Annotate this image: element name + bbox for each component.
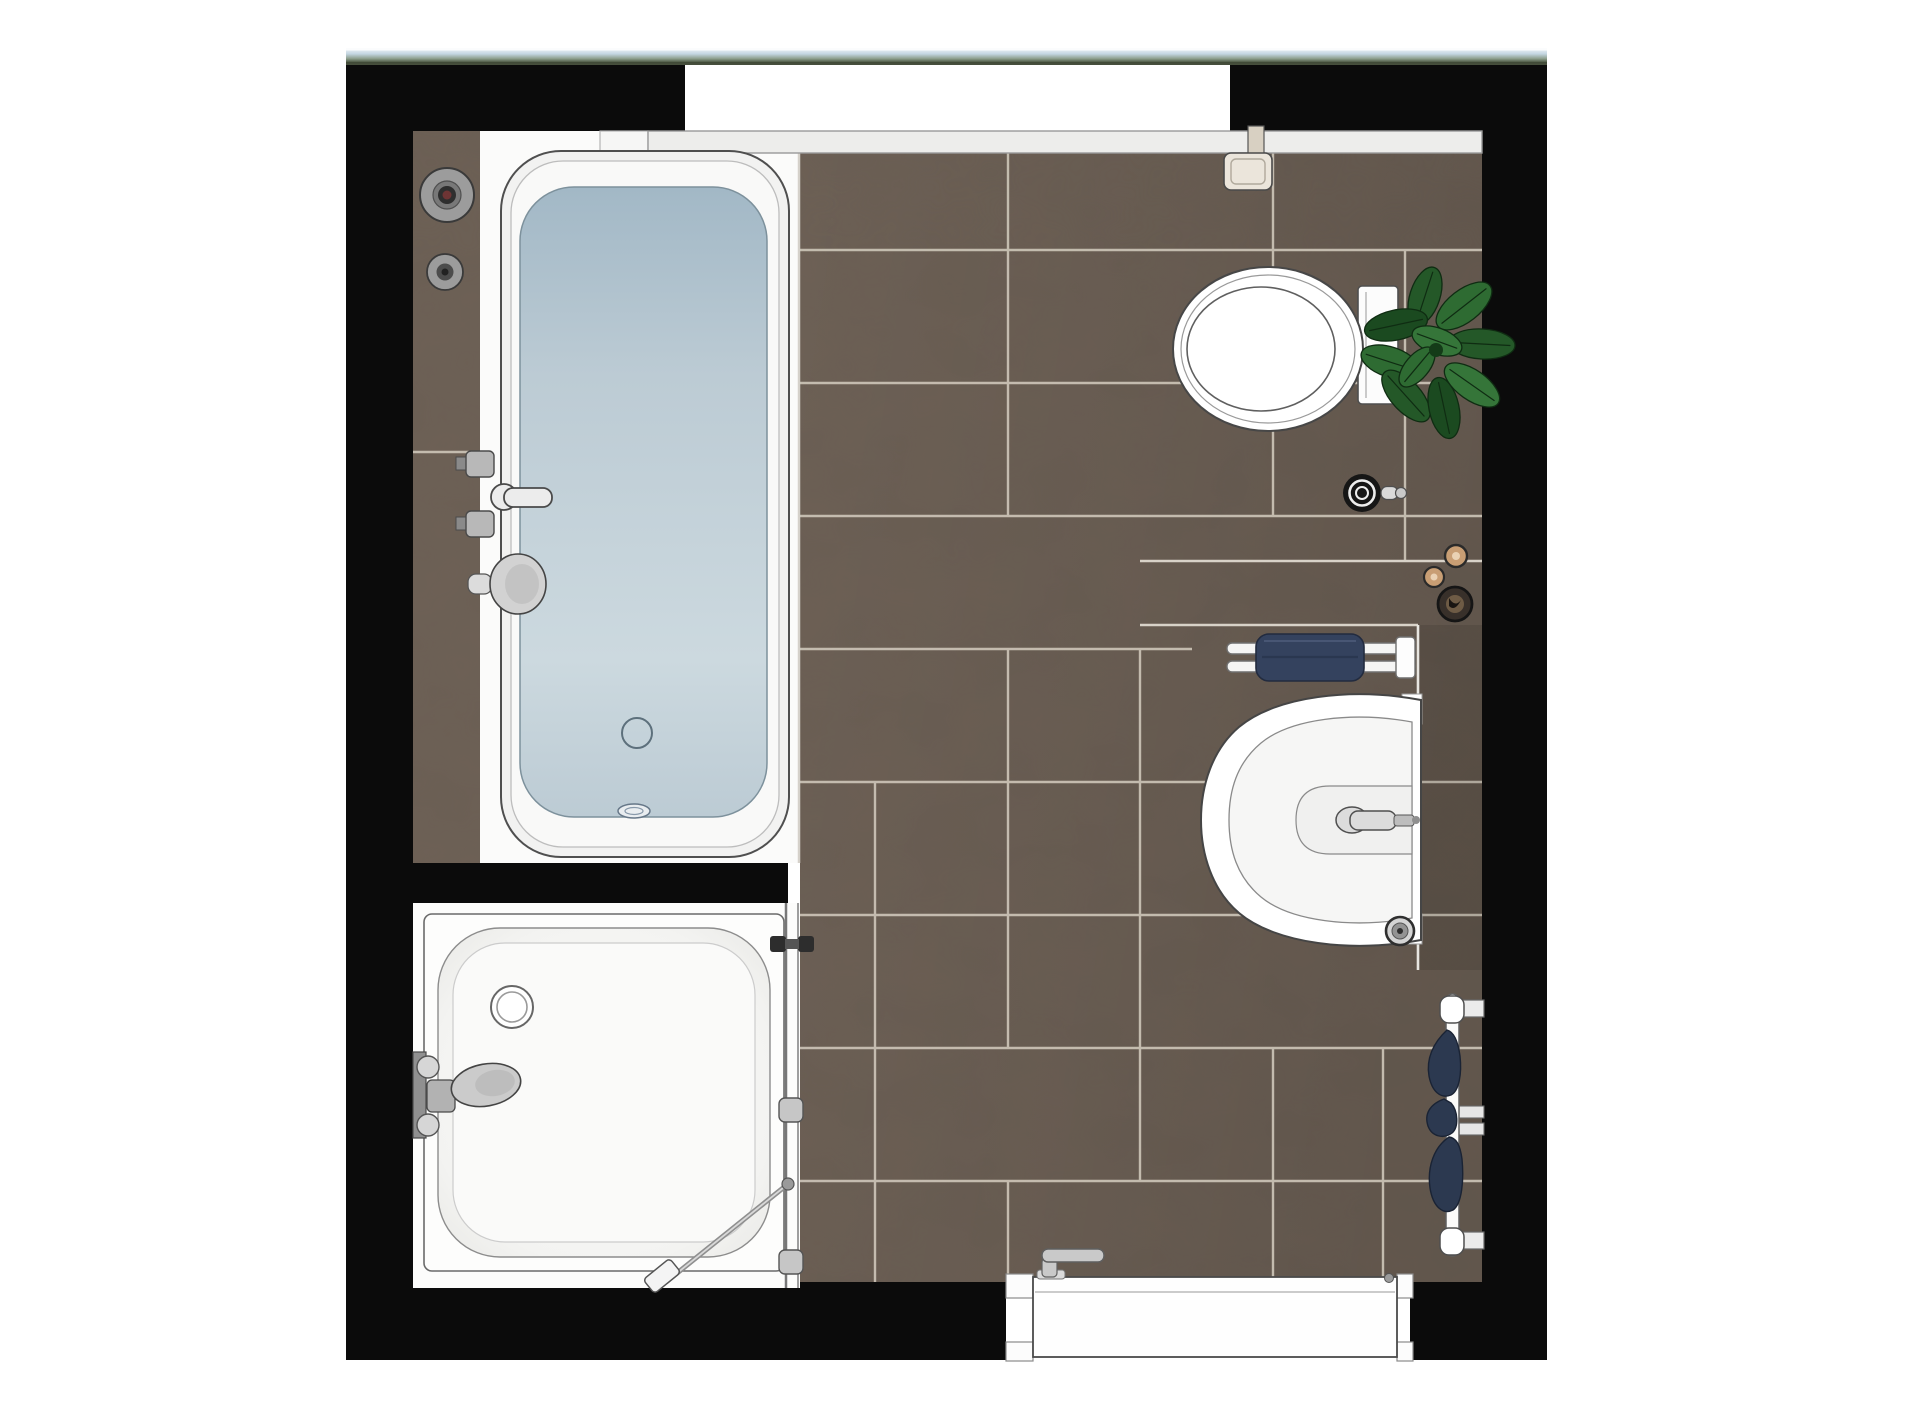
floor-plan-canvas	[0, 0, 1920, 1412]
radiator-towels	[1427, 1030, 1463, 1211]
washbasin	[1201, 694, 1422, 946]
window-strip	[346, 48, 1547, 65]
bath-overflow-icon	[618, 804, 650, 818]
window-recess	[685, 65, 1230, 131]
door-leaf	[1033, 1277, 1397, 1357]
bathtub	[456, 151, 789, 857]
shower-drain-icon	[491, 986, 533, 1028]
shower-enclosure	[413, 903, 814, 1294]
basin-drain-ring	[1386, 917, 1414, 945]
bathtub-water	[520, 187, 767, 817]
